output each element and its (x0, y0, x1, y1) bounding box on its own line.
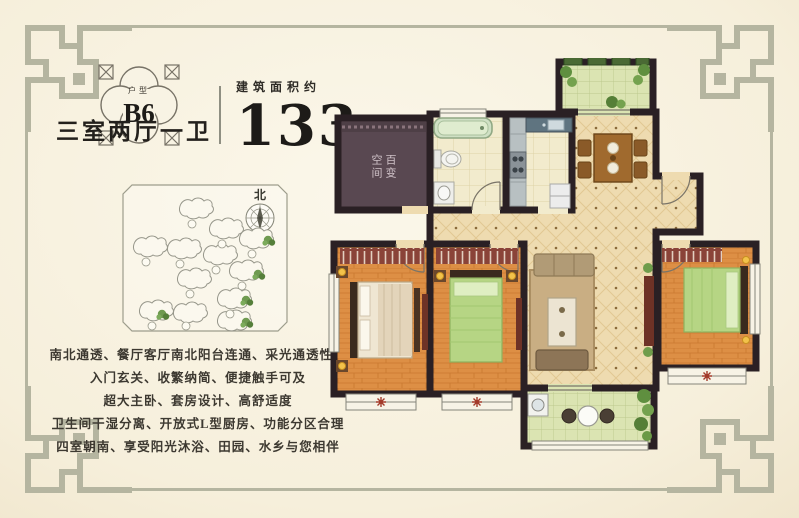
coffee-table-icon (548, 298, 576, 346)
bed-icon (350, 282, 420, 358)
lamp-icon (339, 269, 346, 276)
toilet-icon (434, 150, 461, 168)
flex-room-shelf (342, 122, 426, 132)
wardrobe-icon (340, 248, 424, 264)
bay-window-flower-icon (702, 371, 712, 381)
fridge-icon (550, 184, 570, 208)
feature-line: 南北通透、餐厅客厅南北阳台连通、采光通透性好 (46, 344, 350, 367)
sink-icon (434, 182, 454, 204)
flex-room-label: 百变 (384, 154, 397, 180)
bay-window-flower-icon (376, 397, 386, 407)
flex-room-label: 空间 (370, 153, 383, 180)
floorplan-poster: 户型 B6 三室两厅一卫 建筑面积约 133 m2 北 (0, 0, 799, 518)
balcony-table-icon (578, 406, 598, 426)
dresser-icon (422, 294, 428, 350)
floor-plan: 百变 空间 (326, 58, 768, 482)
tv-cabinet-icon (644, 276, 654, 346)
lamp-icon (743, 337, 750, 344)
site-map: 北 (122, 184, 288, 332)
balcony-chair-icon (562, 409, 576, 423)
plant-icon (643, 263, 653, 273)
balcony-chair-icon (600, 409, 614, 423)
lamp-icon (743, 257, 750, 264)
stove-icon (510, 152, 526, 178)
lamp-icon (339, 363, 346, 370)
feature-line: 卫生间干湿分离、开放式L型厨房、功能分区合理 (46, 413, 350, 436)
bed-icon (684, 266, 748, 334)
wardrobe-icon (436, 248, 518, 264)
plant-icon (643, 347, 653, 357)
dining-table-icon (594, 134, 632, 182)
feature-line: 四室朝南、享受阳光沐浴、田园、水乡与您相伴 (46, 436, 350, 459)
planter-box-icon (564, 58, 649, 65)
frame-line-left (25, 125, 28, 393)
feature-line: 超大主卧、套房设计、高舒适度 (46, 390, 350, 413)
bay-window-flower-icon (472, 397, 482, 407)
bed-icon (450, 270, 502, 362)
frame-line-top (125, 25, 674, 28)
wardrobe-icon (662, 248, 722, 262)
compass-north-label: 北 (254, 187, 266, 202)
frame-line-right (770, 125, 773, 393)
bathtub-icon (434, 118, 492, 138)
header-divider (219, 86, 221, 144)
washing-machine-icon (528, 394, 548, 416)
feature-list: 南北通透、餐厅客厅南北阳台连通、采光通透性好 入门玄关、收繁纳简、便捷触手可及 … (46, 344, 350, 459)
frame-line-bottom (125, 488, 674, 491)
lamp-icon (437, 273, 444, 280)
lamp-icon (509, 273, 516, 280)
feature-line: 入门玄关、收繁纳简、便捷触手可及 (46, 367, 350, 390)
dresser-icon (516, 298, 522, 350)
unit-type-title: 三室两厅一卫 (42, 112, 226, 146)
badge-type-label: 户型 (128, 85, 150, 95)
